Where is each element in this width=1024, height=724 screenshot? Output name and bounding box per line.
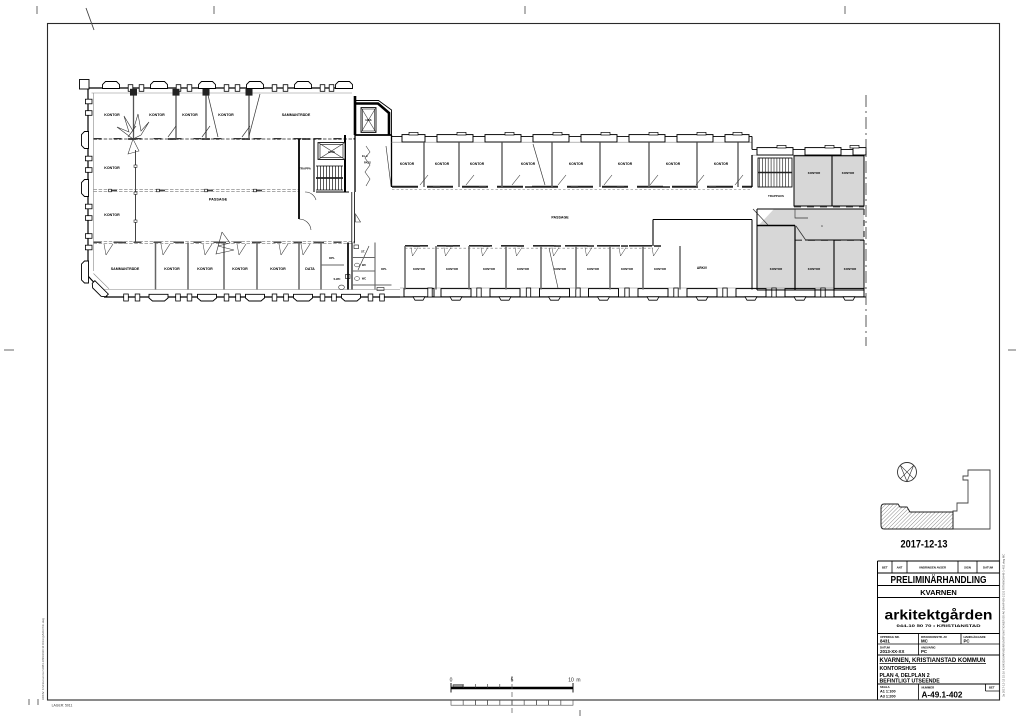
svg-text:KONTOR: KONTOR bbox=[618, 162, 633, 166]
svg-text:KONTOR: KONTOR bbox=[435, 162, 450, 166]
svg-text:KONTOR: KONTOR bbox=[844, 267, 857, 271]
svg-text:TRAPPA: TRAPPA bbox=[299, 167, 312, 171]
svg-text:KONTOR: KONTOR bbox=[808, 171, 821, 175]
svg-text:KPL: KPL bbox=[329, 256, 335, 260]
svg-text:PC: PC bbox=[921, 649, 928, 654]
svg-text:KONTOR: KONTOR bbox=[666, 162, 681, 166]
svg-text:SKALA: SKALA bbox=[880, 685, 890, 689]
svg-text:2017-12-13: 2017-12-13 bbox=[901, 539, 948, 551]
svg-text:044-10 50 70 • KRISTIANSTAD: 044-10 50 70 • KRISTIANSTAD bbox=[897, 624, 982, 628]
svg-text:PC: PC bbox=[964, 639, 971, 644]
svg-text:KONTOR: KONTOR bbox=[104, 213, 120, 217]
svg-text:KONTOR: KONTOR bbox=[232, 267, 248, 271]
svg-text:LAGER: 5011: LAGER: 5011 bbox=[52, 704, 73, 708]
svg-text:KONTOR: KONTOR bbox=[104, 113, 120, 117]
svg-text:NUMMER: NUMMER bbox=[922, 685, 935, 689]
svg-text:KONTOR: KONTOR bbox=[587, 267, 599, 271]
svg-text:KONTOR: KONTOR bbox=[654, 267, 666, 271]
svg-text:KONTOR: KONTOR bbox=[164, 267, 180, 271]
svg-text:KONTOR: KONTOR bbox=[470, 162, 485, 166]
svg-text:KONTOR: KONTOR bbox=[770, 267, 783, 271]
svg-text:KONTOR: KONTOR bbox=[446, 267, 458, 271]
svg-text:KONTOR: KONTOR bbox=[842, 171, 855, 175]
svg-text:HISS: HISS bbox=[365, 118, 371, 122]
svg-text:KONTOR: KONTOR bbox=[483, 267, 495, 271]
svg-text:arkitektgården: arkitektgården bbox=[885, 607, 993, 623]
svg-text:KONTOR: KONTOR bbox=[197, 267, 213, 271]
svg-text:KONTOR: KONTOR bbox=[808, 267, 821, 271]
svg-text:ARKIV: ARKIV bbox=[697, 266, 708, 270]
svg-text:HISS: HISS bbox=[328, 150, 335, 154]
svg-text:2013-XX-XX: 2013-XX-XX bbox=[880, 649, 904, 654]
svg-text:TRAPPHUS: TRAPPHUS bbox=[768, 194, 784, 198]
svg-text:3a 2017-12-13 15:16 K:\84: 3a 2017-12-13 15:16 K:\8431\KVARNEN\RUMS… bbox=[1002, 554, 1006, 697]
svg-text:DATA: DATA bbox=[305, 267, 315, 271]
svg-text:KONTOR: KONTOR bbox=[621, 267, 633, 271]
svg-text:KONTOR: KONTOR bbox=[218, 113, 234, 117]
svg-text:0: 0 bbox=[450, 678, 453, 684]
svg-text:PASS: PASS bbox=[364, 161, 371, 165]
svg-text:PASSAGE: PASSAGE bbox=[551, 216, 569, 220]
svg-text:C: C bbox=[821, 224, 823, 228]
svg-text:ARKIV: K:\Arkivnummer\1884-189: ARKIV: K:\Arkivnummer\1884-1899\1930 til… bbox=[41, 618, 45, 700]
svg-text:SAMMANTRÄDE: SAMMANTRÄDE bbox=[282, 113, 311, 117]
svg-text:KONTOR: KONTOR bbox=[554, 267, 566, 271]
svg-text:SIGN: SIGN bbox=[964, 566, 971, 570]
svg-text:PRELIMINÄRHANDLING: PRELIMINÄRHANDLING bbox=[891, 573, 987, 586]
svg-text:KVARNEN, KRISTIANSTAD KOMMUN: KVARNEN, KRISTIANSTAD KOMMUN bbox=[880, 657, 987, 664]
svg-text:10: 10 bbox=[568, 678, 574, 684]
svg-text:KVARNEN: KVARNEN bbox=[920, 588, 957, 597]
svg-text:KONTOR: KONTOR bbox=[400, 162, 415, 166]
svg-text:BEFINTLIGT UTSEENDE: BEFINTLIGT UTSEENDE bbox=[880, 679, 941, 685]
svg-text:WC: WC bbox=[362, 277, 366, 281]
svg-text:KONTOR: KONTOR bbox=[149, 113, 165, 117]
svg-text:KONTORSHUS: KONTORSHUS bbox=[880, 666, 917, 672]
svg-text:A3 1:200: A3 1:200 bbox=[880, 694, 896, 698]
svg-text:BET: BET bbox=[989, 685, 995, 689]
svg-text:PASSAGE: PASSAGE bbox=[209, 198, 228, 202]
svg-text:KONTOR: KONTOR bbox=[413, 267, 425, 271]
svg-text:KONTOR: KONTOR bbox=[517, 267, 529, 271]
svg-text:BET: BET bbox=[882, 566, 888, 570]
svg-text:SAMMANTRÄDE: SAMMANTRÄDE bbox=[111, 267, 140, 271]
svg-text:KONTOR: KONTOR bbox=[569, 162, 584, 166]
svg-text:ÄNDRINGEN AVSER: ÄNDRINGEN AVSER bbox=[919, 566, 946, 570]
svg-text:ANT: ANT bbox=[897, 566, 903, 570]
svg-text:KONTOR: KONTOR bbox=[182, 113, 198, 117]
svg-text:ST.: ST. bbox=[361, 250, 365, 254]
svg-text:KONTOR: KONTOR bbox=[714, 162, 729, 166]
svg-text:MC: MC bbox=[921, 639, 929, 644]
svg-text:EL-C: EL-C bbox=[362, 154, 368, 158]
svg-text:S.WC: S.WC bbox=[333, 277, 340, 281]
svg-text:m: m bbox=[576, 678, 580, 684]
svg-text:DATUM: DATUM bbox=[983, 566, 994, 570]
svg-text:A1 1:100: A1 1:100 bbox=[880, 689, 896, 693]
svg-text:8431: 8431 bbox=[880, 639, 890, 644]
svg-text:KONTOR: KONTOR bbox=[521, 162, 536, 166]
svg-text:A-49.1-402: A-49.1-402 bbox=[922, 691, 964, 700]
svg-text:WC: WC bbox=[362, 263, 366, 267]
svg-text:KONTOR: KONTOR bbox=[104, 166, 120, 170]
svg-text:KONTOR: KONTOR bbox=[270, 267, 286, 271]
svg-text:KPL: KPL bbox=[381, 267, 387, 271]
